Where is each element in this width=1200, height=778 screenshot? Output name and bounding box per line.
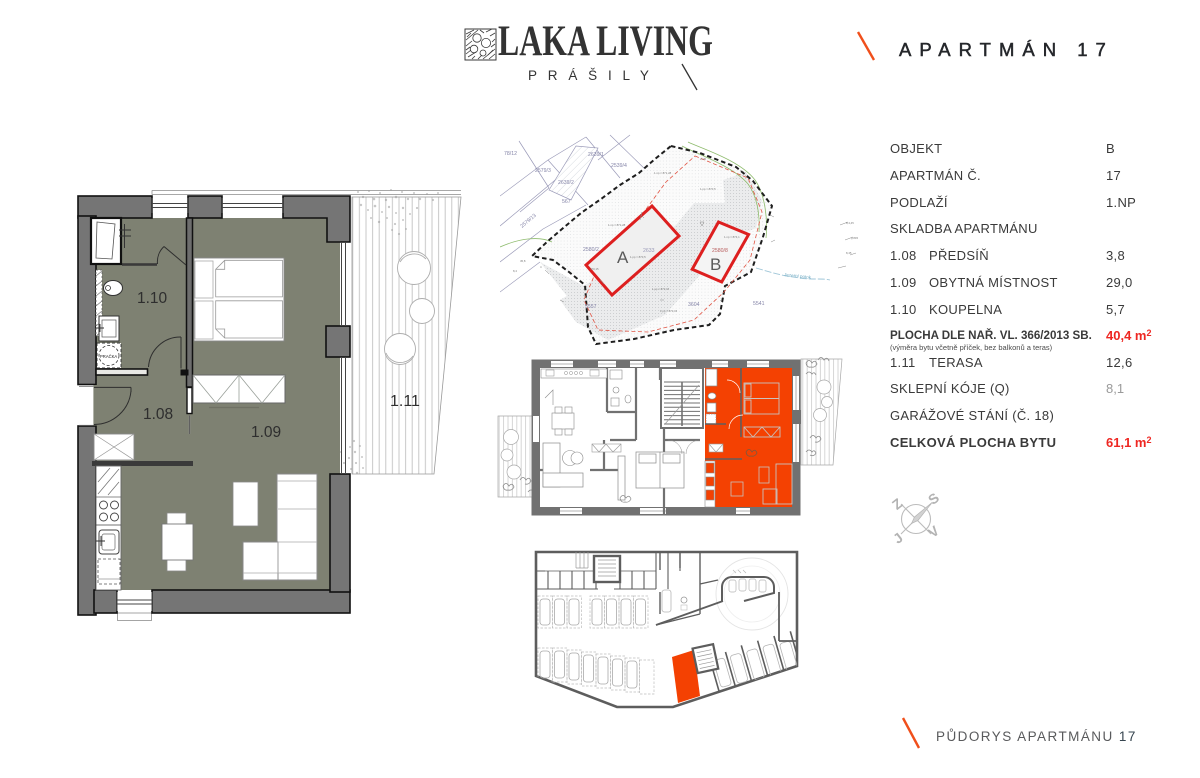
svg-text:1.11: 1.11 — [390, 393, 420, 410]
svg-text:5557: 5557 — [585, 304, 597, 310]
svg-text:3604: 3604 — [688, 302, 700, 308]
svg-text:B: B — [710, 255, 721, 274]
svg-text:2539/4: 2539/4 — [611, 163, 627, 169]
svg-text:1.08: 1.08 — [143, 406, 173, 423]
svg-text:8,4,45: 8,4,45 — [846, 221, 854, 225]
svg-text:2579/13: 2579/13 — [519, 213, 537, 230]
svg-text:Z: Z — [889, 495, 906, 513]
svg-text:2639/1: 2639/1 — [588, 152, 604, 158]
svg-text:1.pp = 870,5: 1.pp = 870,5 — [700, 187, 716, 191]
svg-text:2633: 2633 — [643, 248, 655, 254]
svg-text:8,4: 8,4 — [513, 269, 517, 273]
svg-text:p,845: p,845 — [851, 236, 858, 240]
svg-text:2579/3: 2579/3 — [535, 168, 551, 174]
svg-text:1.10: 1.10 — [137, 290, 168, 307]
svg-text:1.np = 871,28: 1.np = 871,28 — [654, 171, 672, 175]
svg-text:567: 567 — [562, 199, 571, 205]
svg-text:1.pp = 870,5: 1.pp = 870,5 — [630, 255, 646, 259]
svg-text:1.pp = 870,15: 1.pp = 870,15 — [652, 287, 670, 291]
svg-text:V: V — [925, 522, 943, 541]
svg-text:2639/2: 2639/2 — [558, 180, 574, 186]
svg-text:Jezerní potok: Jezerní potok — [784, 272, 812, 280]
svg-text:1.pp = 870,15: 1.pp = 870,15 — [660, 309, 678, 313]
svg-text:45,8: 45,8 — [520, 259, 526, 263]
svg-text:A: A — [617, 248, 629, 267]
svg-text:S: S — [925, 489, 942, 507]
svg-text:2580/2: 2580/2 — [583, 247, 599, 253]
svg-text:1.np = 874,1: 1.np = 874,1 — [724, 235, 740, 239]
svg-text:PRAČKA: PRAČKA — [100, 354, 117, 359]
svg-text:1.09: 1.09 — [251, 424, 281, 441]
svg-text:2x45: 2x45 — [700, 157, 707, 161]
svg-text:8,45: 8,45 — [846, 251, 852, 255]
svg-text:2580/8: 2580/8 — [712, 248, 728, 254]
svg-text:5541: 5541 — [753, 301, 765, 307]
svg-text:1.np = 871,28: 1.np = 871,28 — [608, 223, 626, 227]
svg-text:470,15: 470,15 — [590, 267, 599, 271]
svg-text:78/12: 78/12 — [504, 151, 517, 157]
